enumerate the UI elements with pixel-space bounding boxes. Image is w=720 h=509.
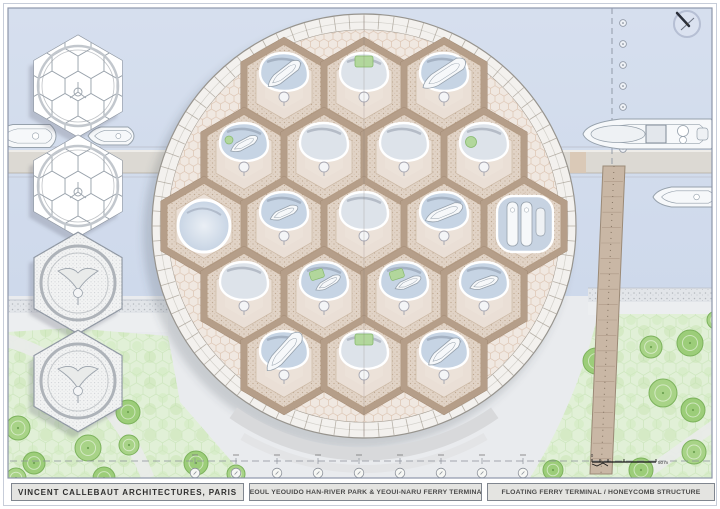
project-title-box: SEOUL YEOUIDO HAN-RIVER PARK & YEOUI-NAR… <box>249 483 482 501</box>
boat-right <box>653 187 719 207</box>
firm-title: VINCENT CALLEBAUT ARCHITECTURES, PARIS <box>18 488 237 497</box>
tree <box>640 336 662 358</box>
tree <box>119 435 139 455</box>
project-title: SEOUL YEOUIDO HAN-RIVER PARK & YEOUI-NAR… <box>249 489 482 496</box>
drawing-title: FLOATING FERRY TERMINAL / HONEYCOMB STRU… <box>501 489 700 496</box>
drawing-title-box: FLOATING FERRY TERMINAL / HONEYCOMB STRU… <box>487 483 715 501</box>
tree <box>677 330 703 356</box>
architectural-sheet: 050 m VINCENT CALLEBAUT ARCHITECTURES, P… <box>0 0 720 509</box>
tree <box>681 398 705 422</box>
tree <box>23 452 45 474</box>
drawing-area: 050 m <box>0 8 720 489</box>
tree <box>707 311 720 329</box>
tree <box>649 379 677 407</box>
ferry <box>583 119 717 149</box>
north-arrow-icon <box>674 11 701 38</box>
tree <box>75 435 101 461</box>
scale-end-label: 50 m <box>658 460 668 465</box>
tree <box>682 440 706 464</box>
site-plan-drawing: 050 m <box>0 0 720 509</box>
tree <box>543 460 563 480</box>
tree <box>6 416 30 440</box>
firm-title-box: VINCENT CALLEBAUT ARCHITECTURES, PARIS <box>11 483 244 501</box>
title-bar: VINCENT CALLEBAUT ARCHITECTURES, PARIS S… <box>0 482 720 504</box>
